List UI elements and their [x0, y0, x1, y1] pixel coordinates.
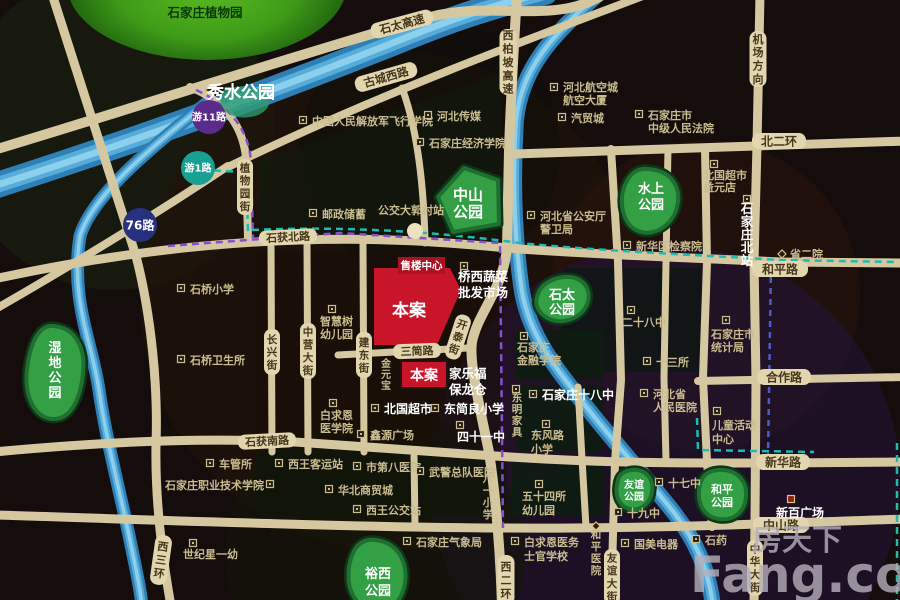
- poi-square-icon-dot: [463, 265, 465, 267]
- road-label-pill: 建东街: [356, 332, 372, 378]
- poi-label: 石桥卫生所: [189, 353, 245, 367]
- park-label-yuxi-park: 公园: [365, 584, 391, 599]
- poi-label: 白求恩: [320, 408, 353, 422]
- map-canvas: 石家庄植物园秀水公园中山公园水上公园石太公园湿地公园裕西公园友谊公园和平公园本案…: [0, 0, 900, 600]
- road-label-pill: 机场方向: [750, 31, 767, 87]
- poi-label: 新华区检察院: [636, 239, 702, 253]
- poi-square-icon-dot: [406, 540, 408, 542]
- park-label-zhongshan-park: 中山: [453, 186, 483, 204]
- poi-square-icon-dot: [646, 360, 648, 362]
- poi-square-icon-dot: [538, 483, 540, 485]
- road-label-pill: 北二环: [752, 133, 806, 149]
- road-label-text: 长兴街: [266, 333, 278, 372]
- park-label-heping-park: 公园: [711, 496, 733, 509]
- poi-square-icon-dot: [427, 114, 429, 116]
- poi-label: 四十一中: [457, 429, 505, 444]
- poi-square-icon-dot: [419, 141, 421, 143]
- poi-square-icon-dot: [530, 214, 532, 216]
- poi-label: 河北省公安厅: [540, 209, 606, 223]
- poi-square-icon-dot: [514, 540, 516, 542]
- road-label-pill: 西柏坡高速: [500, 29, 517, 96]
- poi-square-icon-dot: [532, 393, 534, 395]
- poi-label: 幼儿园: [320, 327, 353, 341]
- road-label-pill: 石获北路: [259, 228, 318, 246]
- poi-label-vertical: 和平医院: [590, 528, 602, 577]
- poi-label: 车管所: [219, 457, 252, 471]
- poi-square-icon-dot: [312, 212, 314, 214]
- poi-label: 警卫局: [539, 222, 573, 236]
- poi-label-vertical: 石家庄北站: [740, 201, 754, 268]
- road-label-text: 新华路: [765, 454, 802, 469]
- poi-label: 公交大郭村站: [378, 203, 444, 217]
- poi-label: 中心: [712, 432, 734, 446]
- poi-label: 白求恩医务: [524, 535, 580, 549]
- poi-square-icon-dot: [626, 244, 628, 246]
- poi-label: 世纪星一幼: [183, 547, 238, 561]
- poi-square-icon-dot: [180, 287, 182, 289]
- poi-label: 石家庄市: [647, 108, 692, 122]
- poi-label: 医学院: [320, 421, 353, 435]
- poi-label: 石家庄十八中: [541, 387, 614, 402]
- poi-square-icon-dot: [638, 113, 640, 115]
- road-label-text: 合作路: [766, 369, 803, 384]
- poi-square-icon-dot: [716, 410, 718, 412]
- poi-square-icon: [788, 496, 795, 503]
- poi-label: 统计局: [711, 340, 744, 354]
- poi-square-icon-dot: [434, 407, 436, 409]
- poi-label: 航空大厦: [563, 93, 608, 107]
- bus-stop-dot: [407, 223, 423, 239]
- park-label-youyi-park: 公园: [624, 491, 644, 503]
- poi-label: 华北商贸城: [338, 483, 393, 497]
- park-label-shuishang-park: 公园: [638, 198, 664, 213]
- road-label-text: 建东街: [358, 336, 370, 375]
- poi-label: 国美电器: [634, 537, 679, 551]
- road-label-pill: 合作路: [757, 369, 811, 385]
- poi-label: 石家庄职业技术学院: [164, 478, 264, 492]
- road-label-pill: 新华路: [756, 454, 810, 470]
- poi-label: 中国人民解放军飞行学院: [312, 114, 433, 128]
- road-label-text: 三简路: [400, 343, 434, 358]
- poi-label: 石家庄: [516, 340, 550, 354]
- poi-square-icon-dot: [374, 407, 376, 409]
- road-airport-zhonghua: [754, 0, 760, 600]
- poi-label: 桥西蔬菜: [458, 269, 509, 284]
- poi-label: 十九中: [627, 506, 660, 520]
- road-label-pill: 和平路: [752, 261, 808, 277]
- road-label-pill: 三简路: [393, 343, 441, 360]
- poi-label: 东风路: [531, 428, 565, 442]
- poi-label: 石药: [704, 533, 727, 547]
- road-label-text: 北二环: [761, 133, 797, 148]
- poi-label: 五十四所: [522, 489, 566, 503]
- poi-label: 家乐福: [449, 366, 487, 381]
- poi-label: 十三所: [656, 355, 689, 369]
- poi-square-icon-dot: [209, 462, 211, 464]
- poi-square-icon-dot: [278, 462, 280, 464]
- poi-label: 士官学校: [524, 549, 569, 563]
- road-label-text: 西柏坡高速: [503, 29, 515, 96]
- poi-label: 人民医院: [653, 400, 697, 414]
- park-label-zhongshan-park: 公园: [453, 203, 483, 221]
- park-label-youyi-park: 友谊: [624, 478, 644, 491]
- poi-square-icon-dot: [356, 465, 358, 467]
- poi-square-icon-dot: [302, 119, 304, 121]
- road-label-pill: 植物园街: [237, 159, 253, 215]
- poi-label: 金融学院: [516, 353, 561, 367]
- poi-square-icon-dot: [643, 392, 645, 394]
- poi-label: 儿童活动: [711, 418, 756, 432]
- poi-square-icon-dot: [617, 511, 619, 513]
- poi-square-icon-dot: [725, 319, 727, 321]
- poi-square-icon-dot: [713, 163, 715, 165]
- poi-label: 十七中: [668, 476, 701, 490]
- poi-label: 秀水公园: [206, 82, 275, 103]
- road-label-text: 机场方向: [753, 32, 764, 86]
- park-label-shitai-park: 公园: [549, 303, 575, 318]
- poi-square-icon-dot: [515, 388, 517, 390]
- poi-label: 石家庄气象局: [415, 535, 482, 549]
- poi-label: 西王客运站: [288, 457, 343, 471]
- poi-label: 批发市场: [458, 285, 508, 300]
- road-label-pill: 长兴街: [264, 329, 280, 375]
- poi-label: 河北传媒: [437, 109, 482, 123]
- poi-label-vertical: 东明家具: [511, 391, 523, 439]
- poi-label: 保龙仓: [448, 382, 487, 397]
- park-label-heping-park: 和平: [711, 482, 733, 496]
- poi-square-icon-dot: [658, 481, 660, 483]
- poi-label: 西王公交站: [366, 503, 421, 517]
- poi-label: 小学: [530, 442, 553, 456]
- road-label-pill: 石获南路: [238, 432, 297, 450]
- poi-square-icon-dot: [553, 86, 555, 88]
- bus-route-badge-label: 76路: [126, 217, 156, 232]
- bus-route-badge-label: 游1路: [185, 162, 213, 175]
- poi-label: 二十八中: [622, 315, 666, 329]
- bus-route-badge-label: 游11路: [192, 111, 227, 124]
- poi-label: 东简良小学: [444, 401, 504, 416]
- road-label-text: 石获北路: [265, 229, 312, 245]
- poi-label: 河北省: [653, 387, 686, 401]
- park-label-shidi-park: 湿地公园: [48, 341, 61, 401]
- road-label-pill: 中营大街: [300, 323, 316, 379]
- poi-label: 石家庄市: [710, 327, 755, 341]
- poi-label: 益元店: [703, 180, 736, 194]
- road-label-text: 和平路: [761, 261, 799, 276]
- poi-square-icon-dot: [523, 335, 525, 337]
- poi-square-icon-dot: [459, 424, 461, 426]
- poi-label-vertical: 金元宝: [380, 357, 392, 392]
- poi-label: 石家庄经济学院: [428, 136, 506, 150]
- poi-square-icon-dot: [360, 433, 362, 435]
- poi-square-icon-dot: [419, 470, 421, 472]
- poi-square-icon-dot: [180, 358, 182, 360]
- poi-square-icon-dot: [545, 423, 547, 425]
- poi-label: 市第八医院: [366, 460, 421, 474]
- sales-center-label: 售楼中心: [401, 259, 443, 272]
- poi-square-icon-dot: [192, 542, 194, 544]
- poi-label: 汽贸城: [571, 111, 604, 125]
- road-label-text: 中营大街: [302, 325, 314, 377]
- poi-label: 新百广场: [776, 505, 824, 520]
- road-label-pill: 西二环: [498, 555, 515, 600]
- road-label-text: 石获南路: [244, 433, 291, 449]
- poi-label-vertical: 八一小学: [482, 473, 494, 521]
- poi-label: 河北航空城: [563, 80, 618, 94]
- poi-label: 石桥小学: [189, 282, 234, 296]
- poi-label: 邮政储蓄: [322, 207, 366, 221]
- poi-label: 省二院: [789, 247, 823, 261]
- poi-label: 幼儿园: [522, 503, 555, 517]
- poi-square-icon-dot: [630, 309, 632, 311]
- poi-label: 北国超市: [384, 401, 432, 416]
- site-main-label: 本案: [392, 300, 427, 321]
- poi-label: 北国超市: [703, 168, 747, 182]
- site-annex-label: 本案: [410, 367, 439, 384]
- road-label-text: 友谊大街: [606, 551, 618, 600]
- road-label-text: 植物园街: [239, 161, 251, 213]
- poi-square-icon-dot: [356, 508, 358, 510]
- poi-label: 智慧树: [320, 314, 353, 328]
- poi-square-icon-dot: [328, 488, 330, 490]
- poi-label: 武警总队医院: [429, 465, 495, 479]
- poi-square-icon-dot: [746, 198, 748, 200]
- poi-square-icon-dot: [332, 402, 334, 404]
- poi-square-icon-dot: [624, 542, 626, 544]
- watermark-en-logo: Fang.com: [690, 546, 900, 600]
- road-label-text: 西二环: [501, 560, 512, 600]
- park-label-shuishang-park: 水上: [638, 181, 664, 197]
- poi-square-icon-dot: [561, 116, 563, 118]
- poi-label: 中级人民法院: [648, 121, 714, 135]
- park-label-botanic-garden: 石家庄植物园: [166, 5, 242, 20]
- poi-square-icon-dot: [331, 308, 333, 310]
- poi-square-icon-dot: [695, 538, 697, 540]
- poi-square-icon-dot: [269, 483, 271, 485]
- road-label-pill: 友谊大街: [604, 549, 620, 600]
- location-map-screenshot: 石家庄植物园秀水公园中山公园水上公园石太公园湿地公园裕西公园友谊公园和平公园本案…: [0, 0, 900, 600]
- park-label-yuxi-park: 裕西: [364, 566, 391, 582]
- park-label-shitai-park: 石太: [548, 287, 576, 303]
- poi-label: 鑫源广场: [369, 428, 414, 442]
